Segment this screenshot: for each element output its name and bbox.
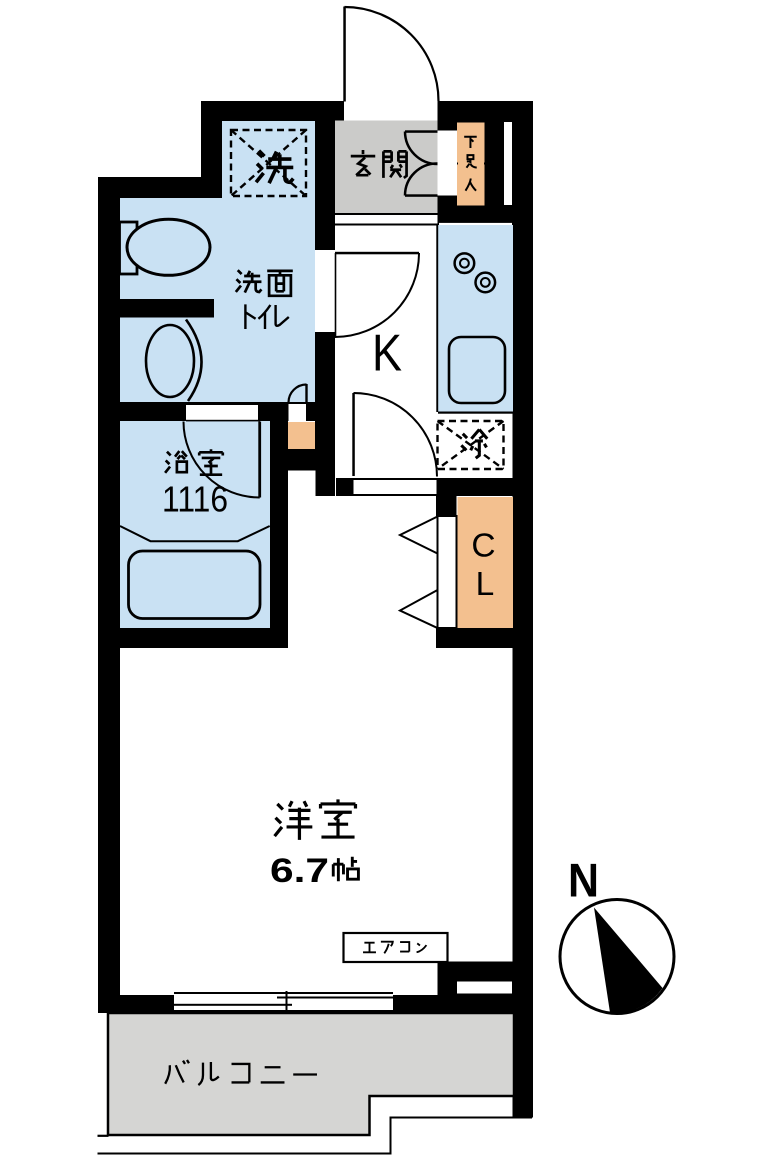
svg-text:6.7: 6.7 bbox=[270, 852, 329, 890]
svg-text:K: K bbox=[372, 325, 402, 383]
svg-text:C: C bbox=[471, 528, 495, 565]
svg-text:1116: 1116 bbox=[162, 479, 228, 520]
svg-text:L: L bbox=[476, 566, 495, 603]
svg-text:N: N bbox=[568, 854, 599, 907]
